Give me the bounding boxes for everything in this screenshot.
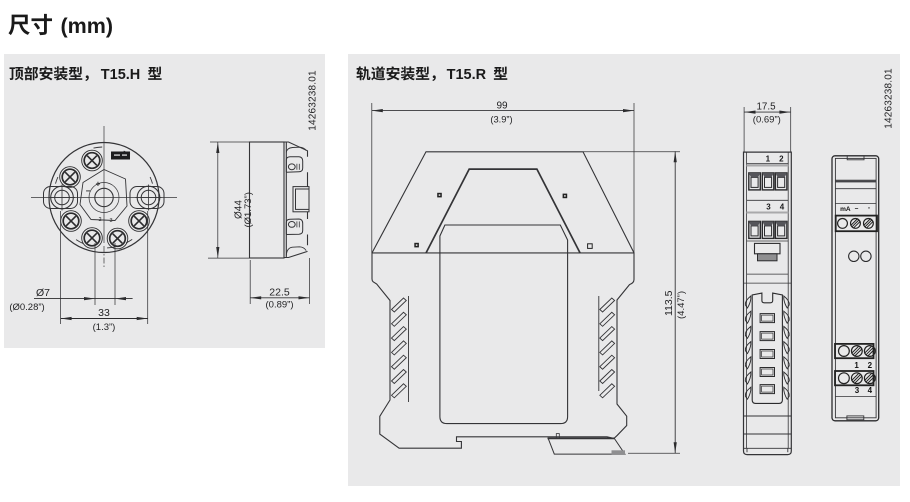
svg-text:113.5: 113.5 xyxy=(663,290,675,316)
svg-text:2: 2 xyxy=(98,217,101,223)
svg-text:4: 4 xyxy=(868,386,873,395)
svg-text:3: 3 xyxy=(855,386,860,395)
svg-text:(0.69”): (0.69”) xyxy=(753,115,781,126)
svg-text:1: 1 xyxy=(854,361,859,370)
svg-text:T15.H: T15.H xyxy=(101,67,141,83)
svg-text:+: + xyxy=(96,180,101,189)
svg-text:(1.3”): (1.3”) xyxy=(93,322,116,333)
svg-text:(4.47”): (4.47”) xyxy=(676,291,687,319)
svg-text:(3.9”): (3.9”) xyxy=(490,115,512,125)
svg-text:17.5: 17.5 xyxy=(756,102,776,113)
svg-text:99: 99 xyxy=(496,101,508,112)
svg-text:T15.R: T15.R xyxy=(447,67,487,83)
svg-text:33: 33 xyxy=(98,307,110,319)
svg-text:(mm): (mm) xyxy=(61,14,114,38)
svg-text:·: · xyxy=(868,204,871,213)
svg-text:2: 2 xyxy=(779,154,784,163)
svg-text:mA: mA xyxy=(840,206,851,213)
svg-text:3: 3 xyxy=(109,218,112,224)
svg-text:2: 2 xyxy=(868,361,873,370)
svg-text:−: − xyxy=(855,206,859,213)
svg-text:(0.89”): (0.89”) xyxy=(266,300,294,311)
svg-text:4: 4 xyxy=(780,203,785,212)
svg-text:(Ø1.73”): (Ø1.73”) xyxy=(243,192,254,227)
svg-text:1: 1 xyxy=(766,154,771,163)
svg-text:Ø7: Ø7 xyxy=(36,287,50,299)
svg-text:−: − xyxy=(86,187,91,196)
svg-text:22.5: 22.5 xyxy=(269,287,290,299)
svg-text:(Ø0.28”): (Ø0.28”) xyxy=(9,302,44,313)
svg-text:3: 3 xyxy=(766,203,771,212)
